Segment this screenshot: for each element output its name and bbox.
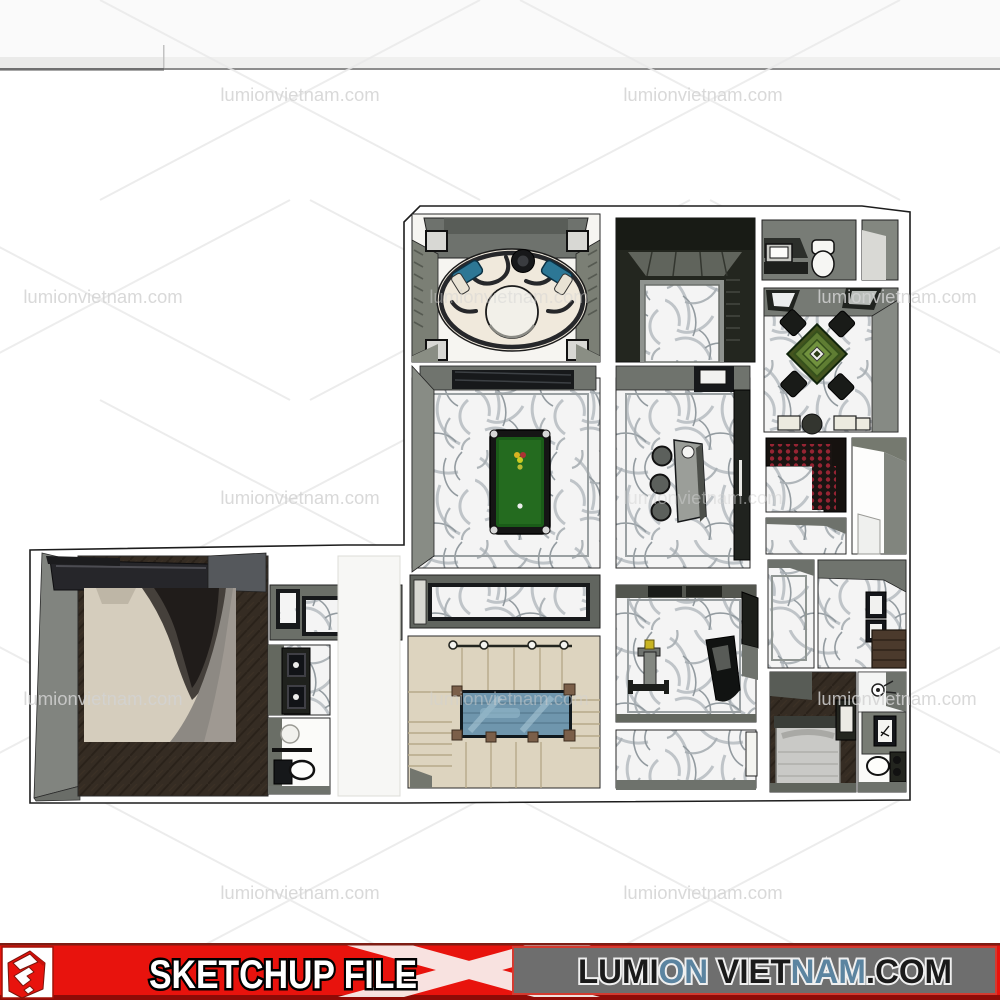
svg-text:lumionvietnam.com: lumionvietnam.com (429, 286, 588, 307)
svg-text:lumionvietnam.com: lumionvietnam.com (623, 84, 782, 105)
svg-text:LUMION VIETNAM.COM: LUMION VIETNAM.COM (578, 953, 952, 991)
svg-text:lumionvietnam.com: lumionvietnam.com (817, 286, 976, 307)
svg-text:SKETCHUP FILE: SKETCHUP FILE (149, 953, 417, 997)
svg-text:lumionvietnam.com: lumionvietnam.com (23, 286, 182, 307)
svg-text:lumionvietnam.com: lumionvietnam.com (220, 882, 379, 903)
svg-text:lumionvietnam.com: lumionvietnam.com (220, 487, 379, 508)
svg-text:lumionvietnam.com: lumionvietnam.com (817, 688, 976, 709)
svg-text:lumionvietnam.com: lumionvietnam.com (23, 688, 182, 709)
svg-text:lumionvietnam.com: lumionvietnam.com (429, 688, 588, 709)
svg-text:lumionvietnam.com: lumionvietnam.com (220, 84, 379, 105)
svg-text:lumionvietnam.com: lumionvietnam.com (623, 487, 782, 508)
svg-text:lumionvietnam.com: lumionvietnam.com (623, 882, 782, 903)
